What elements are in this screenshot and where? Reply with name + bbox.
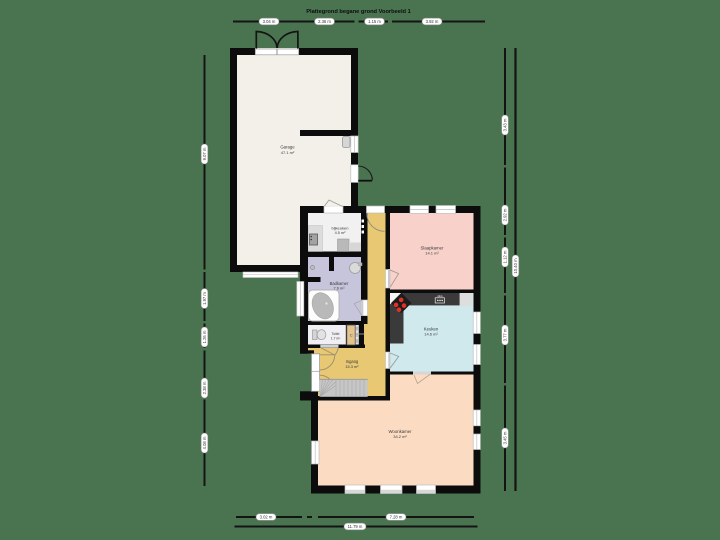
svg-text:15.3 m²: 15.3 m² [345,364,359,369]
svg-text:3.02 m: 3.02 m [260,515,273,520]
svg-text:47.1 m²: 47.1 m² [281,150,295,155]
svg-text:4.08 m: 4.08 m [202,436,207,449]
svg-text:7.6 m²: 7.6 m² [333,286,345,291]
svg-text:7.28 m: 7.28 m [390,515,403,520]
svg-text:3.92 m: 3.92 m [426,19,439,24]
svg-text:2.38 m: 2.38 m [202,381,207,394]
svg-text:34.2 m²: 34.2 m² [393,434,407,439]
svg-text:11.79 m: 11.79 m [348,524,363,529]
svg-text:3.77 m: 3.77 m [503,328,508,341]
svg-text:AEG: AEG [437,295,442,298]
svg-text:2.36 m: 2.36 m [318,19,331,24]
svg-text:1.7 m²: 1.7 m² [331,336,341,340]
svg-text:3.04 m: 3.04 m [263,19,276,24]
svg-text:1.12 m: 1.12 m [503,250,508,263]
svg-text:3.43 m: 3.43 m [503,118,508,131]
svg-text:1.15 m: 1.15 m [368,19,381,24]
svg-text:Garage: Garage [280,145,295,150]
svg-text:14.1 m²: 14.1 m² [425,251,439,256]
svg-text:bijkeuken: bijkeuken [332,225,349,230]
svg-text:C: C [350,332,353,337]
svg-text:1.26 m: 1.26 m [202,330,207,343]
svg-text:14.6 m²: 14.6 m² [424,331,438,336]
svg-text:Plattegrond begane grond Voorb: Plattegrond begane grond Voorbeeld 1 [306,9,411,15]
svg-text:2.92 m: 2.92 m [503,208,508,221]
svg-text:9.07 m: 9.07 m [202,147,207,160]
svg-text:10.40 m: 10.40 m [513,258,518,274]
svg-text:1.97 m: 1.97 m [202,292,207,305]
svg-text:4.5 m²: 4.5 m² [335,231,346,235]
svg-text:3.45 m: 3.45 m [503,431,508,444]
